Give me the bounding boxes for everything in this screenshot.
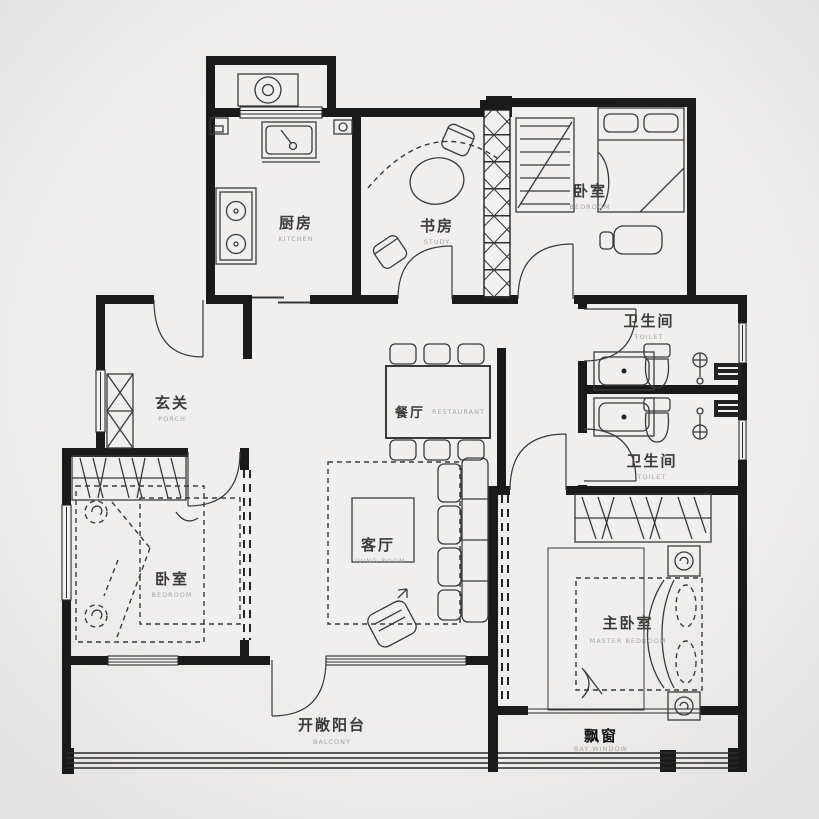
shower-panel	[714, 400, 742, 417]
room-toilet-south: 卫生间 TOILET	[594, 398, 742, 481]
pillow	[676, 641, 696, 683]
kitchen-sliding-door	[252, 298, 310, 303]
living-label: 客厅	[360, 536, 395, 554]
room-living: 客厅 LIVING ROOM	[328, 458, 488, 650]
balcony-railing	[66, 753, 488, 768]
bedroom-north-label: 卧室	[573, 182, 607, 200]
room-bedroom-west: 卧室 BEDROOM	[72, 456, 240, 642]
porch-window	[96, 370, 105, 432]
dining-sublabel: RESTAURANT	[432, 408, 485, 416]
bedroom-west-side-window	[62, 505, 71, 600]
shower-head	[693, 353, 707, 384]
light-partitions	[244, 470, 508, 704]
dining-label: 餐厅	[394, 405, 425, 421]
toilet-south-window	[739, 420, 746, 460]
flue-shaft	[484, 110, 510, 298]
kitchen-sink	[262, 122, 316, 158]
nightstand-lamp	[668, 692, 700, 720]
toilet-bowl	[644, 344, 670, 388]
study-desk	[600, 226, 662, 254]
pillow	[85, 501, 107, 523]
study-sublabel: STUDY	[424, 238, 450, 246]
master-bedroom-door	[510, 434, 566, 490]
pillow	[676, 585, 696, 627]
blanket-fold	[582, 668, 602, 698]
wardrobe	[72, 456, 186, 500]
toilet-north-sublabel: TOILET	[634, 333, 664, 341]
toilet-north-label: 卫生间	[623, 312, 674, 330]
bedroom-west-label: 卧室	[155, 570, 189, 588]
room-toilet-north: 卫生间 TOILET	[594, 312, 742, 390]
bedroom-north-sublabel: BEDROOM	[570, 203, 611, 211]
bay-window-label: 飘窗	[584, 727, 618, 745]
floor-plan: 厨房 KITCHEN 书房 STUDY	[0, 0, 819, 819]
nightstand-lamp	[668, 546, 700, 576]
master-bedroom-sublabel: MASTER BEDROOM	[590, 637, 667, 645]
kitchen-window	[240, 107, 322, 118]
desk-chair	[440, 122, 476, 157]
pillow	[85, 605, 107, 627]
bedroom-west-sublabel: BEDROOM	[152, 591, 193, 599]
living-balcony-window	[326, 656, 466, 665]
room-bay-window: 飘窗 BAY WINDOW	[574, 727, 628, 753]
wardrobe	[516, 118, 574, 212]
gas-stove	[216, 188, 256, 264]
shower-head	[693, 408, 707, 439]
room-master-bedroom: 主卧室 MASTER BEDROOM	[548, 494, 711, 720]
single-bed	[598, 108, 684, 212]
round-table	[406, 153, 468, 209]
room-porch: 玄关 PORCH	[155, 394, 189, 423]
living-sublabel: LIVING ROOM	[350, 557, 405, 565]
kitchen-label: 厨房	[279, 214, 313, 232]
master-bedroom-label: 主卧室	[602, 614, 653, 632]
double-bed	[76, 486, 240, 642]
toilet-bowl	[644, 398, 670, 442]
desk-chair	[371, 233, 409, 270]
shower-panel	[714, 363, 742, 380]
dining-chairs	[390, 344, 484, 460]
curtain-arc	[368, 141, 500, 188]
shoe-cabinet	[107, 374, 133, 448]
blanket-fold	[176, 512, 198, 521]
bay-window-glazing	[498, 753, 738, 768]
room-balcony: 开敞阳台 BALCONY	[298, 716, 366, 746]
balcony-sublabel: BALCONY	[313, 738, 351, 746]
doors	[154, 244, 636, 716]
balcony-label: 开敞阳台	[298, 716, 366, 734]
dining-table	[386, 366, 490, 438]
toilet-north-window	[739, 323, 746, 363]
washing-machine	[238, 74, 298, 106]
bedroom-north-door	[518, 244, 573, 299]
bay-window-sublabel: BAY WINDOW	[574, 745, 628, 753]
toilet-south-label: 卫生间	[626, 452, 677, 470]
chair-arrow-marks	[398, 589, 407, 598]
porch-label: 玄关	[155, 394, 189, 412]
bedroom-west-south-window	[108, 656, 178, 665]
toilet-south-sublabel: TOILET	[637, 473, 667, 481]
sofa	[438, 458, 488, 622]
room-dining: 餐厅 RESTAURANT	[386, 344, 490, 460]
study-label: 书房	[420, 217, 454, 235]
kitchen-sublabel: KITCHEN	[278, 235, 313, 243]
room-bedroom-north: 卧室 BEDROOM	[516, 108, 684, 254]
entry-door	[154, 300, 203, 357]
wardrobe	[575, 494, 711, 542]
porch-sublabel: PORCH	[158, 415, 186, 423]
balcony-door	[272, 660, 326, 716]
